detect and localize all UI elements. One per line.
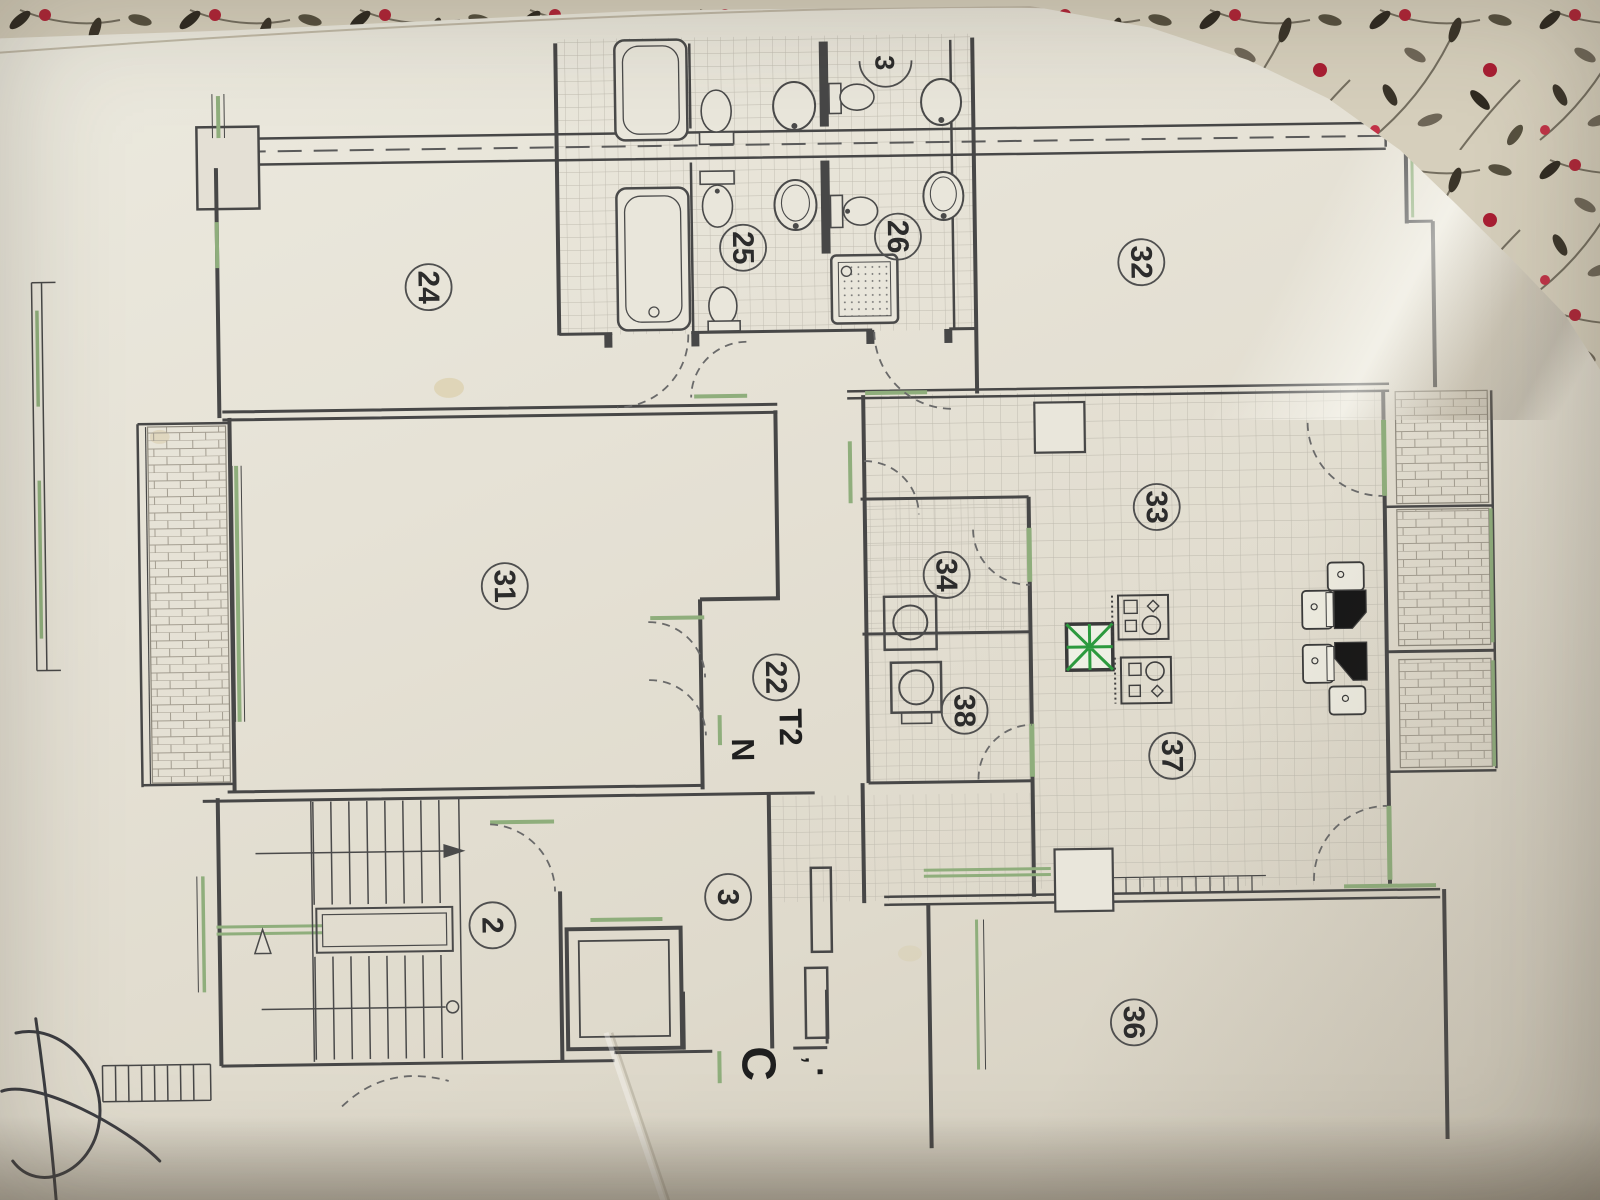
washbasin-icon xyxy=(773,82,816,131)
room-label-37: 37 xyxy=(1149,732,1196,779)
section-tick: ’ xyxy=(777,1056,815,1064)
room-label-3: 3 xyxy=(705,874,752,921)
photo-of-floor-plan: 24 25 26 32 31 33 34 22 38 37 36 2 3 xyxy=(0,0,1600,1200)
svg-text:24: 24 xyxy=(411,270,444,304)
balcony-right-bottom xyxy=(1399,658,1492,767)
room-label-33: 33 xyxy=(1133,484,1180,531)
svg-text:3: 3 xyxy=(869,55,899,70)
door-arc-entrance xyxy=(342,1076,449,1107)
wall-pier xyxy=(805,968,828,1038)
washbasin-icon xyxy=(923,172,964,221)
shower-tray-icon xyxy=(831,255,898,324)
door-arc-room31-a xyxy=(648,621,705,678)
svg-text:33: 33 xyxy=(1140,490,1173,524)
toilet-icon xyxy=(699,90,734,144)
room-label-24: 24 xyxy=(405,264,452,311)
cabinet xyxy=(1055,849,1114,912)
room-label-32: 32 xyxy=(1118,239,1165,286)
toilet-icon xyxy=(830,195,877,228)
paper-crease xyxy=(606,1032,663,1200)
svg-text:26: 26 xyxy=(881,220,914,254)
room-label-36: 36 xyxy=(1111,999,1158,1046)
elevator-icon xyxy=(567,928,683,1050)
ventilation-shaft-icon xyxy=(1066,624,1113,671)
svg-text:25: 25 xyxy=(726,231,759,265)
pen-scribble xyxy=(1,1017,161,1200)
paper-crease-shadow xyxy=(612,1032,669,1200)
paper-stain xyxy=(434,378,464,398)
section-dot: . xyxy=(810,1067,848,1077)
door-arc-hall-top xyxy=(690,342,747,398)
floor-plan-drawing: 24 25 26 32 31 33 34 22 38 37 36 2 3 xyxy=(0,0,1600,1200)
room-label-34: 34 xyxy=(923,552,970,599)
svg-text:32: 32 xyxy=(1124,245,1157,279)
stair-direction-arrow xyxy=(443,844,465,858)
door-arc-room31-b xyxy=(649,679,706,736)
svg-text:38: 38 xyxy=(947,694,980,728)
staircase-icon xyxy=(253,798,469,1063)
room-label-25: 25 xyxy=(720,224,767,271)
parapet-hatch xyxy=(102,1064,210,1102)
balcony-right-mid xyxy=(1397,508,1491,645)
room-label-2: 2 xyxy=(469,902,516,949)
svg-text:36: 36 xyxy=(1117,1005,1150,1039)
svg-text:37: 37 xyxy=(1155,739,1188,773)
toilet-icon xyxy=(700,171,735,227)
balcony-right-top xyxy=(1395,390,1489,503)
room-label-38: 38 xyxy=(941,687,988,734)
svg-text:34: 34 xyxy=(929,558,962,592)
unit-letter-label: N xyxy=(725,738,761,762)
svg-text:3: 3 xyxy=(711,888,744,905)
bathtub-icon xyxy=(616,188,690,331)
paper-sheet: 24 25 26 32 31 33 34 22 38 37 36 2 3 xyxy=(0,0,1600,1200)
unit-type-label: T2 xyxy=(773,708,810,746)
balcony-left xyxy=(148,426,231,783)
svg-text:2: 2 xyxy=(475,917,508,934)
paper-stain xyxy=(898,945,922,961)
column xyxy=(196,127,259,210)
door-arc-bath25 xyxy=(616,335,689,408)
room-label-26: 26 xyxy=(875,213,922,260)
room-label-22: 22 xyxy=(753,654,800,701)
section-label: C xyxy=(731,1046,784,1081)
room-label-31: 31 xyxy=(481,563,528,610)
svg-text:22: 22 xyxy=(759,660,792,694)
svg-text:31: 31 xyxy=(488,569,521,603)
door-arc-hall2 xyxy=(490,823,555,892)
kitchen-counter xyxy=(1034,402,1085,453)
washbasin-icon xyxy=(774,180,817,231)
